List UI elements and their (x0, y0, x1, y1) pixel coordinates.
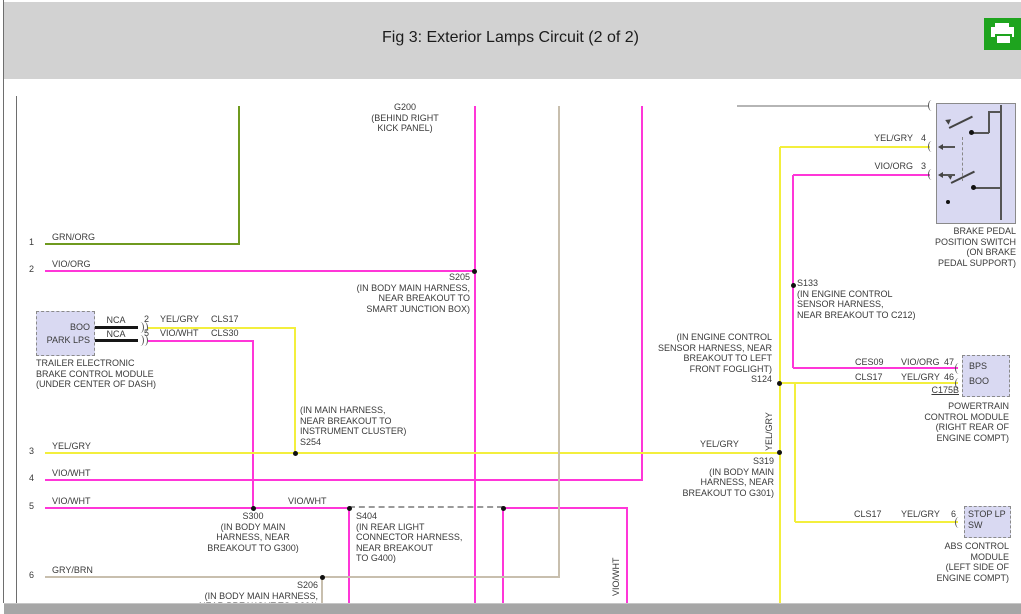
pin2-color-label: YEL/GRY (160, 314, 199, 325)
wire5-number: 5 (22, 501, 34, 512)
wire-vio-wht-drop-627 (626, 508, 628, 603)
tebcm-pin-boo-label: BOO (46, 322, 90, 333)
pin2-number: 2 (144, 314, 149, 325)
wire-s404-dashed-segment (349, 506, 503, 508)
s300-label: S300 (IN BODY MAIN HARNESS, NEAR BREAKOU… (190, 511, 316, 553)
pin5-circuit-label: CLS30 (211, 328, 239, 339)
wire-gry-brn-drop-s206 (321, 577, 323, 603)
vertical-yel-gry-label: YEL/GRY (764, 393, 774, 451)
tebcm-label: TRAILER ELECTRONIC BRAKE CONTROL MODULE … (36, 358, 156, 390)
switch-contact-dot-lower (946, 200, 950, 204)
s124-label: (IN ENGINE CONTROL SENSOR HARNESS, NEAR … (648, 332, 772, 385)
wire-gry-brn-vertical (558, 106, 560, 578)
wire-vio-wht-vertical-642 (641, 106, 643, 481)
wire3-number: 3 (22, 446, 34, 457)
connector-arc-pcm-47 (955, 363, 962, 374)
pcm-row1-pin-number: 47 (940, 357, 954, 368)
pin2-circuit-label: CLS17 (211, 314, 239, 325)
switch-top-link-h (972, 132, 989, 134)
wire-vio-wht-drop-349 (348, 508, 350, 603)
connector-arc-switch-pin4 (928, 141, 935, 152)
switch-top-link-h2 (988, 111, 1001, 113)
wire-grn-org-vertical (238, 106, 240, 245)
wire-vio-wht-drop-s300 (252, 341, 254, 509)
wire6-number: 6 (22, 570, 34, 581)
s254-label: (IN MAIN HARNESS, NEAR BREAKOUT TO INSTR… (300, 405, 406, 447)
wire-yel-gry-branch-abs (794, 383, 796, 522)
switch-contact-dot-top (969, 130, 974, 135)
pcm-connector-label: C175B (917, 385, 959, 396)
connector-arc-switch-top (928, 100, 935, 111)
pin5-number: 5 (144, 328, 149, 339)
abs-row-circuit-label: CLS17 (854, 509, 882, 520)
wire-vio-org-vertical-s133 (792, 175, 794, 368)
wire-vio-vertical-s205 (474, 106, 476, 603)
wire-yel-gry-to-switch-pin4 (780, 146, 930, 148)
switch-pin4-arrowhead (938, 144, 943, 150)
switch-pin3-color-label: VIO/ORG (855, 161, 913, 172)
wire2-color-label: VIO/ORG (52, 259, 91, 270)
tebcm-box (36, 311, 95, 356)
pcm-pin-boo-label: BOO (969, 376, 989, 387)
wire1-number: 1 (22, 237, 34, 248)
g200-label: G200 (BEHIND RIGHT KICK PANEL) (355, 102, 455, 134)
pcm-pin-bps-label: BPS (969, 361, 987, 372)
wire5-mid-color-label: VIO/WHT (288, 496, 327, 507)
abs-pin-stop-lp-sw-label: STOP LP SW (968, 509, 1006, 530)
wire3-mid-color-label: YEL/GRY (700, 439, 739, 450)
pcm-row2-color-label: YEL/GRY (901, 372, 940, 383)
page-title: Fig 3: Exterior Lamps Circuit (2 of 2) (0, 29, 1021, 47)
tebcm-pin-park-lps-label: PARK LPS (40, 335, 90, 346)
pcm-row2-circuit-label: CLS17 (855, 372, 883, 383)
switch-bottom-link-h (973, 187, 1001, 189)
wire-vio-wht-branch-right (503, 507, 628, 509)
diagram-left-border-line (16, 96, 17, 603)
pcm-row1-circuit-label: CES09 (855, 357, 884, 368)
wire-yel-gry-row3 (45, 452, 781, 454)
splice-dot-s319 (777, 450, 782, 455)
abs-label: ABS CONTROL MODULE (LEFT SIDE OF ENGINE … (887, 541, 1009, 583)
switch-contact-dot-bottom (971, 185, 976, 190)
switch-mechanical-link (962, 137, 963, 181)
wire1-color-label: GRN/ORG (52, 232, 95, 243)
wire-gray-switch-feed (737, 105, 929, 107)
pcm-label: POWERTRAIN CONTROL MODULE (RIGHT REAR OF… (887, 401, 1009, 443)
splice-dot-s404-right (501, 506, 506, 511)
bottom-bar (4, 603, 1021, 614)
wire5-color-label: VIO/WHT (52, 496, 91, 507)
wiring-diagram-page: Fig 3: Exterior Lamps Circuit (2 of 2) (0, 0, 1021, 613)
s133-label: S133 (IN ENGINE CONTROL SENSOR HARNESS, … (797, 278, 916, 320)
s319-label: S319 (IN BODY MAIN HARNESS, NEAR BREAKOU… (650, 456, 774, 498)
wire-vio-wht-row4 (45, 479, 643, 481)
switch-pin3-number: 3 (916, 161, 926, 172)
connector-arc-switch-pin3 (928, 169, 935, 180)
switch-pin4-number: 4 (916, 133, 926, 144)
wire-grn-org-row1 (45, 243, 239, 245)
s404-label: S404 (IN REAR LIGHT CONNECTOR HARNESS, N… (356, 511, 462, 564)
splice-dot-s206 (320, 575, 325, 580)
splice-dot-s124 (777, 381, 782, 386)
connector-arc-abs-6 (955, 517, 962, 528)
splice-dot-s404-left (347, 506, 352, 511)
wire-yel-gry-vertical-main (779, 147, 781, 603)
wire-vio-wht-drop-503 (502, 508, 504, 603)
wire4-color-label: VIO/WHT (52, 468, 91, 479)
abs-row-color-label: YEL/GRY (901, 509, 940, 520)
wire2-number: 2 (22, 264, 34, 275)
wire-park-lps-stub (148, 340, 254, 342)
wire-yel-gry-drop-s254 (294, 328, 296, 453)
wire6-color-label: GRY/BRN (52, 565, 93, 576)
pin5-color-label: VIO/WHT (160, 328, 199, 339)
nca-label-1: NCA (98, 315, 134, 326)
page-left-edge-line (3, 0, 4, 603)
switch-pin3-arrowhead (938, 172, 943, 178)
splice-dot-s254 (293, 451, 298, 456)
wire-yel-gry-to-abs-6 (795, 521, 958, 523)
wire4-number: 4 (22, 473, 34, 484)
wire-gry-brn-row6 (45, 576, 560, 578)
pcm-row1-color-label: VIO/ORG (901, 357, 940, 368)
switch-top-link-v (988, 111, 990, 133)
s205-label: S205 (IN BODY MAIN HARNESS, NEAR BREAKOU… (345, 272, 470, 314)
switch-pin3-stub (943, 174, 955, 176)
switch-pin4-stub (943, 146, 955, 148)
print-button[interactable] (984, 18, 1021, 50)
brake-switch-label: BRAKE PEDAL POSITION SWITCH (ON BRAKE PE… (894, 226, 1016, 268)
wire-vio-wht-row5 (45, 507, 350, 509)
vertical-vio-wht-label: VIO/WHT (611, 538, 621, 596)
nca-label-2: NCA (98, 329, 134, 340)
switch-pin4-color-label: YEL/GRY (855, 133, 913, 144)
splice-dot-s133 (791, 283, 796, 288)
pcm-row2-pin-number: 46 (940, 372, 954, 383)
wire3-color-label: YEL/GRY (52, 441, 91, 452)
wire-vio-org-to-switch-pin3 (793, 174, 930, 176)
switch-inner-conductor (1000, 105, 1002, 220)
splice-dot-s205 (472, 269, 477, 274)
abs-row-pin-number: 6 (944, 509, 956, 520)
